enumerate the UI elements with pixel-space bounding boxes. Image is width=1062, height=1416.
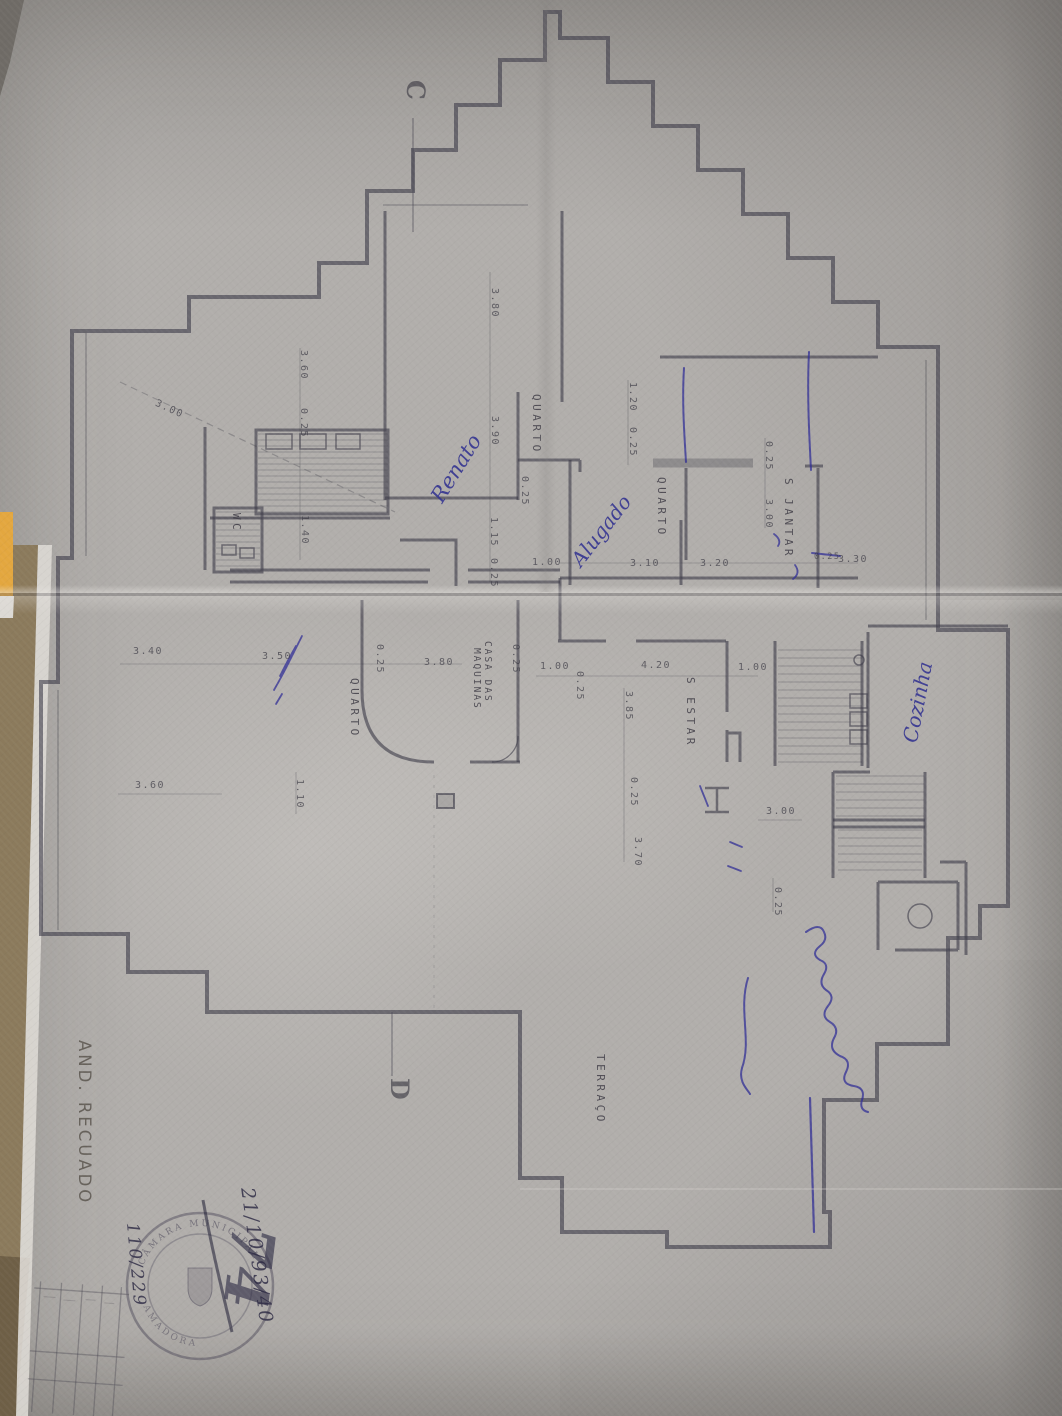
dim-300-h: 3.00 <box>766 806 796 817</box>
dim-025-h: 0.25 <box>374 644 385 674</box>
hatch-stairs-2a <box>836 776 924 816</box>
dim-320-h: 3.20 <box>700 558 730 569</box>
dim-310-h: 3.10 <box>630 558 660 569</box>
dim-025-j: 0.25 <box>574 671 585 701</box>
plan-drawing: CÂMARA MUNICIPAL AMADORA <box>0 0 1062 1416</box>
handwriting-and-recuado: AND. RECUADO <box>75 1040 94 1205</box>
room-label-quarto-lower: QUARTO <box>348 678 361 739</box>
dim-380-h: 3.80 <box>424 657 454 668</box>
stamp-scrawl: 74 <box>208 1221 288 1312</box>
room-label-quarto-upper: QUARTO <box>530 394 543 455</box>
handwriting-scribble-large <box>806 927 868 1112</box>
dim-025-b: 0.25 <box>519 476 530 506</box>
dim-420-h: 4.20 <box>641 660 671 671</box>
dim-360-h: 3.60 <box>135 780 165 791</box>
dim-385-v: 3.85 <box>623 691 634 721</box>
dim-025-d: 0.25 <box>627 427 638 457</box>
dim-100-b: 1.00 <box>540 661 570 672</box>
hatch-kitchen <box>258 434 388 512</box>
stamp-arc-bottom: AMADORA <box>140 1303 198 1349</box>
section-lines <box>392 118 413 1076</box>
section-marker-c: C <box>401 80 430 100</box>
column-ibeam <box>705 788 729 812</box>
dimension-lines <box>118 272 858 912</box>
dim-120-v: 1.20 <box>627 382 638 412</box>
photographed-floor-plan: CÂMARA MUNICIPAL AMADORA C D QUARTO QUAR… <box>0 0 1062 1416</box>
room-label-sala-jantar: S JANTAR <box>782 478 795 559</box>
door-arc <box>492 736 518 762</box>
room-label-maquinas: MAQUINAS <box>471 648 482 710</box>
yellow-object <box>0 512 13 598</box>
dim-100-a: 1.00 <box>532 557 562 568</box>
room-label-sala-estar: S ESTAR <box>684 677 697 748</box>
dim-370-v: 3.70 <box>632 837 643 867</box>
dim-025-c: 0.25 <box>488 558 499 588</box>
dim-110-v: 1.10 <box>294 779 305 809</box>
dim-390-v: 3.90 <box>489 416 500 446</box>
dim-025-k: 0.25 <box>814 552 840 562</box>
dim-025-i: 0.25 <box>510 644 521 674</box>
room-label-quarto-rented: QUARTO <box>655 477 668 538</box>
interior-walls <box>205 211 1008 955</box>
dim-100-c: 1.00 <box>738 662 768 673</box>
svg-text:AMADORA: AMADORA <box>140 1303 198 1349</box>
dim-025-e: 0.25 <box>763 441 774 471</box>
dim-025-f: 0.25 <box>628 777 639 807</box>
section-marker-d: D <box>385 1078 414 1100</box>
dim-025-g: 0.25 <box>772 887 783 917</box>
outer-wall <box>41 12 1008 1247</box>
toilet-fixture <box>908 904 932 928</box>
dim-330-h: 3.30 <box>838 554 868 565</box>
desk-corner-topleft <box>0 0 24 96</box>
hatch-stairs-1 <box>778 650 862 762</box>
dim-115-v: 1.15 <box>488 517 499 547</box>
room-label-casa-das: CASA DAS <box>482 641 493 703</box>
column-square <box>437 794 454 808</box>
handwriting-scribble-small <box>274 636 302 704</box>
room-label-wc: WC <box>230 513 243 533</box>
dim-380-v: 3.80 <box>489 288 500 318</box>
title-block-grid <box>26 1281 130 1416</box>
hatch-stairs-2b <box>838 830 922 870</box>
white-sliver <box>0 596 14 618</box>
dim-360-v: 3.60 <box>298 350 309 380</box>
dim-350-h: 3.50 <box>262 651 292 662</box>
room-label-terraco: TERRAÇO <box>594 1054 607 1125</box>
dim-340-h: 3.40 <box>133 646 163 657</box>
dim-300-v: 3.00 <box>763 499 774 529</box>
dim-140-v: 1.40 <box>299 515 310 545</box>
dim-025-a: 0.25 <box>298 408 309 438</box>
